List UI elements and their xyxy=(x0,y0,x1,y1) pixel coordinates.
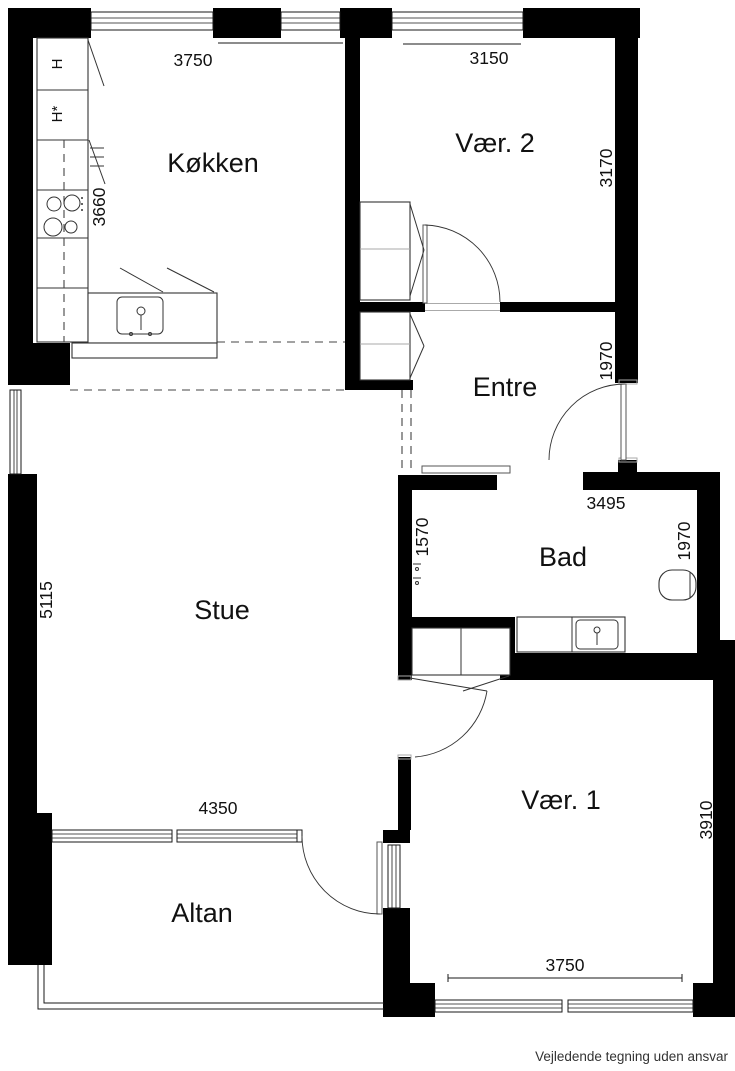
wall-segment xyxy=(345,380,413,390)
dim-label-living-left: 5115 xyxy=(36,581,56,619)
room2-door xyxy=(423,225,500,312)
wardrobe-room2 xyxy=(360,202,424,300)
wall-segment xyxy=(8,8,33,343)
room-label-living: Stue xyxy=(194,595,250,625)
wardrobe-room1 xyxy=(412,628,510,691)
wall-segment xyxy=(713,658,735,1017)
wall-segment xyxy=(500,302,622,312)
disclaimer-text: Vejledende tegning uden ansvar xyxy=(535,1049,728,1064)
window-room2-top xyxy=(392,12,523,30)
toilet-icon xyxy=(659,570,696,600)
wall-segment xyxy=(693,983,735,1017)
room1-door xyxy=(397,676,487,759)
wardrobe-entre xyxy=(360,312,424,380)
walls xyxy=(8,8,735,1017)
window-living-balcony-1 xyxy=(52,830,172,842)
wall-segment xyxy=(345,8,360,390)
dim-label-kitchen-top: 3750 xyxy=(174,50,213,70)
room-label-room1: Vær. 1 xyxy=(521,785,601,815)
wall-segment xyxy=(360,302,425,312)
dim-label-bath-right: 1970 xyxy=(674,521,694,560)
kitchen-sink-icon xyxy=(88,293,217,343)
kitchen-counter-front xyxy=(72,343,217,358)
room-label-bath: Bad xyxy=(539,542,587,572)
window-living-left xyxy=(10,390,21,474)
dim-label-room1-right: 3910 xyxy=(696,800,716,839)
window-living-balcony-2 xyxy=(177,830,302,842)
wall-segment xyxy=(383,830,410,843)
window-room1-balcony xyxy=(388,845,400,908)
appliance-label-h-star: H* xyxy=(49,106,66,123)
window-room1-bottom-2 xyxy=(568,1000,693,1012)
wall-segment xyxy=(8,474,37,813)
room-label-balcony: Altan xyxy=(171,898,233,928)
wall-segment xyxy=(398,475,412,680)
dim-label-room2-top: 3150 xyxy=(470,48,509,68)
room-label-entre: Entre xyxy=(473,372,538,402)
floor-plan-svg: Køkken Vær. 2 Entre Bad Stue Vær. 1 Alta… xyxy=(0,0,735,1071)
wall-segment xyxy=(400,475,497,490)
dim-label-room2-right: 3170 xyxy=(596,148,616,187)
kitchen-fixtures xyxy=(37,38,217,358)
wall-segment xyxy=(8,343,70,385)
bath-sink-icon xyxy=(517,617,625,652)
wall-segment xyxy=(697,640,735,658)
shower-mixer-icon xyxy=(413,564,421,585)
dim-label-living-bottom: 4350 xyxy=(199,798,238,818)
wall-segment xyxy=(383,983,435,1017)
wall-segment xyxy=(8,813,52,965)
dim-label-room1-bottom: 3750 xyxy=(546,955,585,975)
wall-segment xyxy=(697,472,720,658)
window-kitchen-top xyxy=(91,12,213,30)
wall-segment xyxy=(398,757,411,830)
appliance-label-h: H xyxy=(49,59,66,70)
window-room1-bottom-1 xyxy=(435,1000,562,1012)
dim-label-kitchen-left: 3660 xyxy=(89,187,109,226)
wall-segment xyxy=(615,8,638,383)
room-label-room2: Vær. 2 xyxy=(455,128,535,158)
dim-label-bath-top: 3495 xyxy=(587,493,626,513)
wall-segment xyxy=(515,653,720,680)
floor-plan-page: Køkken Vær. 2 Entre Bad Stue Vær. 1 Alta… xyxy=(0,0,735,1071)
wall-segment xyxy=(213,8,281,38)
dim-label-entre-right: 1970 xyxy=(596,341,616,380)
window-kitchen-top-small xyxy=(281,12,340,30)
balcony-door xyxy=(302,836,382,914)
dim-label-bath-left: 1570 xyxy=(412,517,432,556)
wall-segment xyxy=(583,472,700,490)
balcony-railing xyxy=(38,965,384,1009)
room-label-kitchen: Køkken xyxy=(167,148,259,178)
entrance-door xyxy=(549,380,637,462)
